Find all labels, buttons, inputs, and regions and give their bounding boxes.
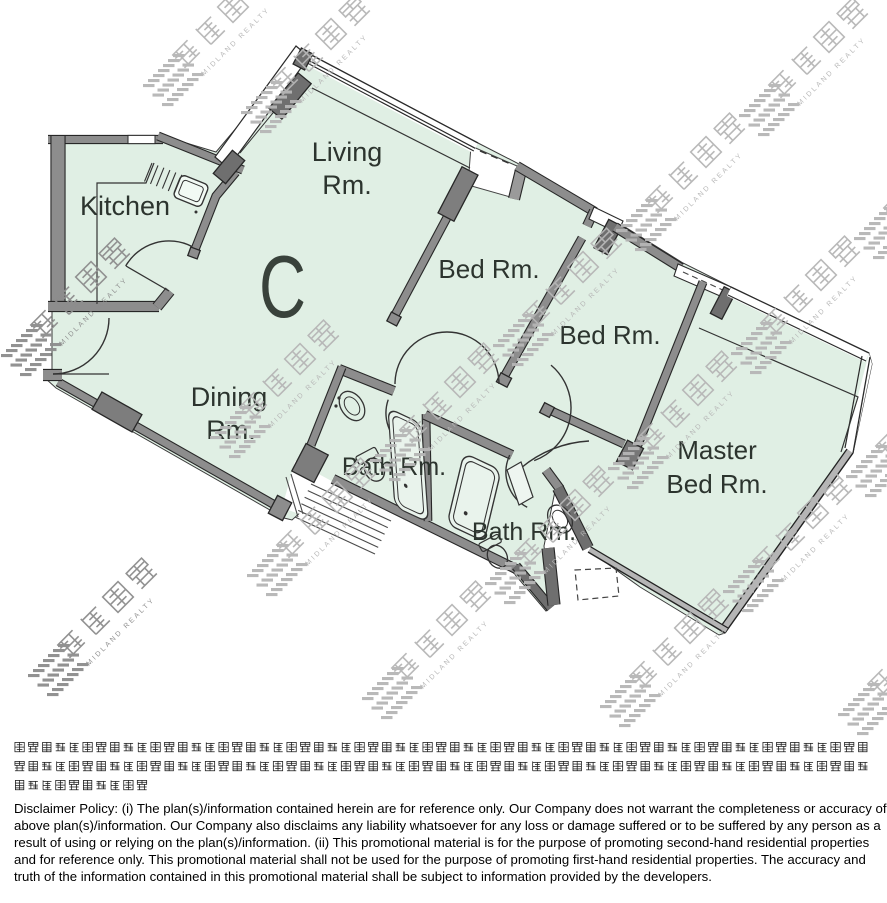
- svg-text:above plan(s)/information. Our: above plan(s)/information. Our Company a…: [14, 818, 881, 833]
- svg-text:Rm.: Rm.: [322, 170, 372, 200]
- svg-text:Living: Living: [312, 137, 383, 167]
- svg-text:Kitchen: Kitchen: [80, 191, 170, 221]
- svg-text:C: C: [259, 237, 306, 336]
- svg-text:truth of the information conta: truth of the information contained in th…: [14, 869, 712, 884]
- svg-text:Disclaimer Policy: (i) The pla: Disclaimer Policy: (i) The plan(s)/infor…: [14, 801, 887, 816]
- svg-text:result of using or relying on: result of using or relying on the plan(s…: [14, 835, 870, 850]
- svg-text:Dining: Dining: [191, 382, 268, 412]
- svg-text:Bed Rm.: Bed Rm.: [438, 254, 539, 284]
- svg-text:Bed Rm.: Bed Rm.: [559, 320, 660, 350]
- svg-text:Bath Rm.: Bath Rm.: [472, 518, 576, 546]
- svg-text:Bed Rm.: Bed Rm.: [666, 469, 767, 499]
- svg-text:and for reference only. This p: and for reference only. This promotional…: [14, 852, 866, 867]
